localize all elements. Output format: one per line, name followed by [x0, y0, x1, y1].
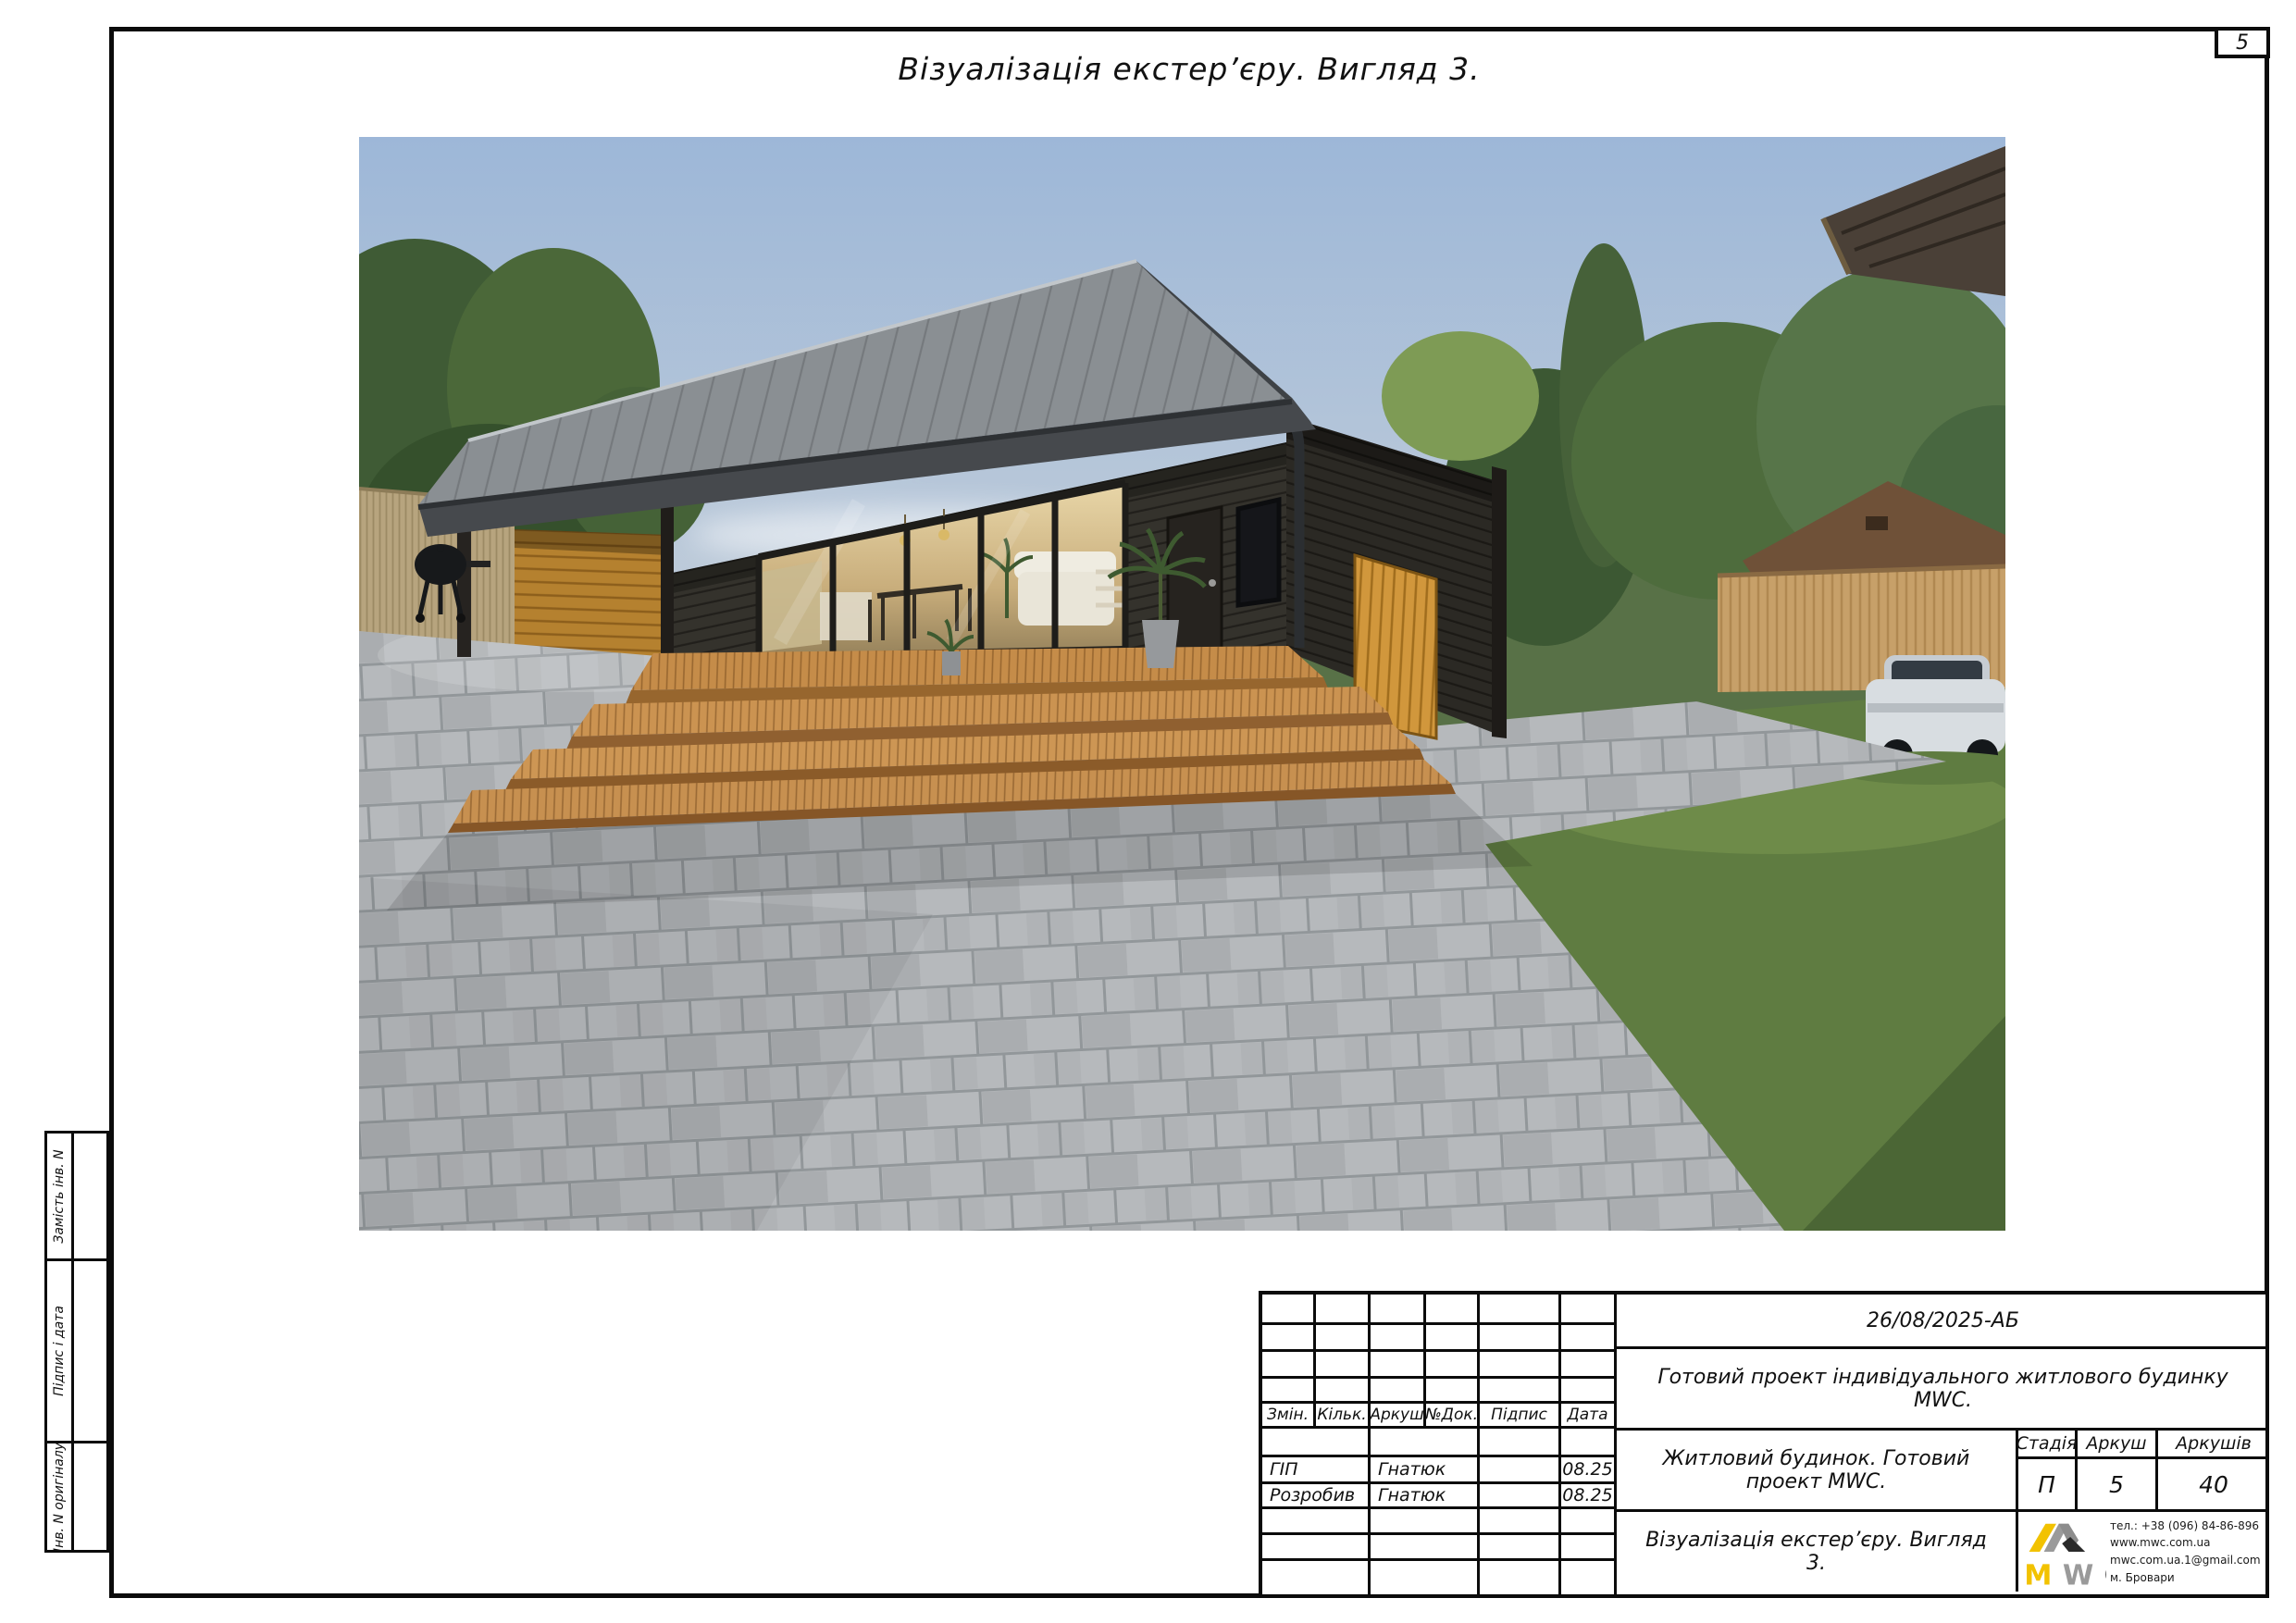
side-row: Замість інв. N — [47, 1134, 106, 1261]
signature-sign — [1480, 1484, 1561, 1509]
table-cell — [1561, 1379, 1617, 1404]
logo-letter-m: M — [2024, 1560, 2052, 1590]
table-cell — [1262, 1379, 1316, 1404]
side-label-cell: Підпис і дата — [47, 1261, 74, 1441]
table-cell — [1480, 1429, 1561, 1457]
object-row: Житловий будинок. Готовий проект MWC. Ст… — [1617, 1431, 2269, 1512]
table-cell — [1480, 1325, 1561, 1352]
table-cell — [1561, 1325, 1617, 1352]
corner-post — [1492, 466, 1507, 738]
company-phone: тел.: +38 (096) 84-86-896 — [2110, 1518, 2261, 1535]
signature-name: Гнатюк — [1371, 1457, 1480, 1484]
col-header-kilk: Кільк. — [1316, 1404, 1371, 1429]
company-city: м. Бровари — [2110, 1569, 2261, 1587]
table-cell — [1426, 1352, 1480, 1379]
table-cell — [1561, 1535, 1617, 1561]
table-cell — [1426, 1295, 1480, 1325]
revision-table: Змін. Кільк. Аркуш №Док. Підпис Дата ГІП… — [1262, 1295, 1617, 1594]
table-cell — [1371, 1295, 1426, 1325]
table-cell — [1426, 1325, 1480, 1352]
table-cell — [1371, 1509, 1480, 1535]
side-blank-cell — [74, 1261, 106, 1441]
col-header-data: Дата — [1561, 1404, 1617, 1429]
stage-header: Стадія — [2018, 1431, 2078, 1459]
table-cell — [1561, 1352, 1617, 1379]
company-contacts: тел.: +38 (096) 84-86-896 www.mwc.com.ua… — [2106, 1518, 2261, 1586]
side-label-cell: Замість інв. N — [47, 1134, 74, 1258]
side-blank-cell — [74, 1443, 106, 1550]
signature-role: Розробив — [1262, 1484, 1371, 1509]
table-cell — [1426, 1379, 1480, 1404]
table-cell — [1262, 1295, 1316, 1325]
logo-letter-w: W — [2063, 1560, 2093, 1590]
window — [1238, 500, 1279, 605]
table-cell — [1371, 1352, 1426, 1379]
stage-table: Стадія Аркуш Аркушів П 5 40 — [2018, 1431, 2269, 1509]
document-code: 26/08/2025-АБ — [1617, 1295, 2269, 1349]
table-cell — [1262, 1561, 1371, 1594]
table-cell — [1371, 1535, 1480, 1561]
drawing-sheet: 5 Візуалізація екстер’єру. Вигляд 3. — [0, 0, 2296, 1623]
side-label: Підпис і дата — [52, 1306, 67, 1396]
side-blank-cell — [74, 1134, 106, 1258]
table-cell — [1262, 1509, 1371, 1535]
table-cell — [1371, 1429, 1480, 1457]
col-header-zmin: Змін. — [1262, 1404, 1316, 1429]
signature-name: Гнатюк — [1371, 1484, 1480, 1509]
table-cell — [1371, 1561, 1480, 1594]
sheets-total-value: 40 — [2158, 1459, 2269, 1509]
side-row: Інв. N оригіналу — [47, 1443, 106, 1550]
title-block: Змін. Кільк. Аркуш №Док. Підпис Дата ГІП… — [1259, 1291, 2269, 1598]
table-cell — [1480, 1352, 1561, 1379]
company-website: www.mwc.com.ua — [2110, 1534, 2261, 1552]
table-cell — [1371, 1379, 1426, 1404]
side-label-cell: Інв. N оригіналу — [47, 1443, 74, 1550]
signature-date: 08.25 — [1561, 1484, 1617, 1509]
table-cell — [1561, 1561, 1617, 1594]
table-cell — [1480, 1379, 1561, 1404]
page-title: Візуалізація екстер’єру. Вигляд 3. — [109, 51, 2269, 87]
signature-sign — [1480, 1457, 1561, 1484]
object-name: Житловий будинок. Готовий проект MWC. — [1617, 1431, 2018, 1509]
table-cell — [1561, 1295, 1617, 1325]
table-cell — [1371, 1325, 1426, 1352]
table-cell — [1316, 1352, 1371, 1379]
drawing-name: Візуалізація екстер’єру. Вигляд 3. — [1617, 1512, 2018, 1592]
table-cell — [1561, 1429, 1617, 1457]
svg-text:M W: M W C — [2024, 1560, 2106, 1590]
mwc-logo: M W C — [2021, 1514, 2106, 1590]
table-cell — [1561, 1509, 1617, 1535]
table-cell — [1480, 1561, 1561, 1594]
sheet-header: Аркуш — [2078, 1431, 2158, 1459]
table-cell — [1262, 1352, 1316, 1379]
col-header-pidpys: Підпис — [1480, 1404, 1561, 1429]
table-cell — [1316, 1379, 1371, 1404]
sheet-value: 5 — [2078, 1459, 2158, 1509]
side-attribute-columns: Замість інв. N Підпис і дата Інв. N ориг… — [44, 1131, 109, 1553]
side-row: Підпис і дата — [47, 1261, 106, 1443]
title-block-right: 26/08/2025-АБ Готовий проект індивідуаль… — [1617, 1295, 2269, 1594]
table-cell — [1480, 1535, 1561, 1561]
table-cell — [1480, 1295, 1561, 1325]
signature-role: ГІП — [1262, 1457, 1371, 1484]
col-header-doc: №Док. — [1426, 1404, 1480, 1429]
table-cell — [1316, 1325, 1371, 1352]
table-cell — [1262, 1429, 1371, 1457]
signature-date: 08.25 — [1561, 1457, 1617, 1484]
exterior-render-scene — [359, 137, 2005, 1231]
company-email: mwc.com.ua.1@gmail.com — [2110, 1552, 2261, 1569]
table-cell — [1262, 1535, 1371, 1561]
stage-value: П — [2018, 1459, 2078, 1509]
table-cell — [1316, 1295, 1371, 1325]
table-cell — [1480, 1509, 1561, 1535]
drawing-row: Візуалізація екстер’єру. Вигляд 3. M W C — [1617, 1512, 2269, 1592]
project-name: Готовий проект індивідуального житлового… — [1617, 1349, 2269, 1431]
side-label: Інв. N оригіналу — [52, 1442, 67, 1551]
table-cell — [1262, 1325, 1316, 1352]
company-cell: M W C тел.: +38 (096) 84-86-896 www.mwc.… — [2018, 1512, 2269, 1592]
col-header-arkush: Аркуш — [1371, 1404, 1426, 1429]
sheets-total-header: Аркушів — [2158, 1431, 2269, 1459]
exterior-render — [359, 137, 2005, 1231]
side-label: Замість інв. N — [52, 1149, 67, 1243]
